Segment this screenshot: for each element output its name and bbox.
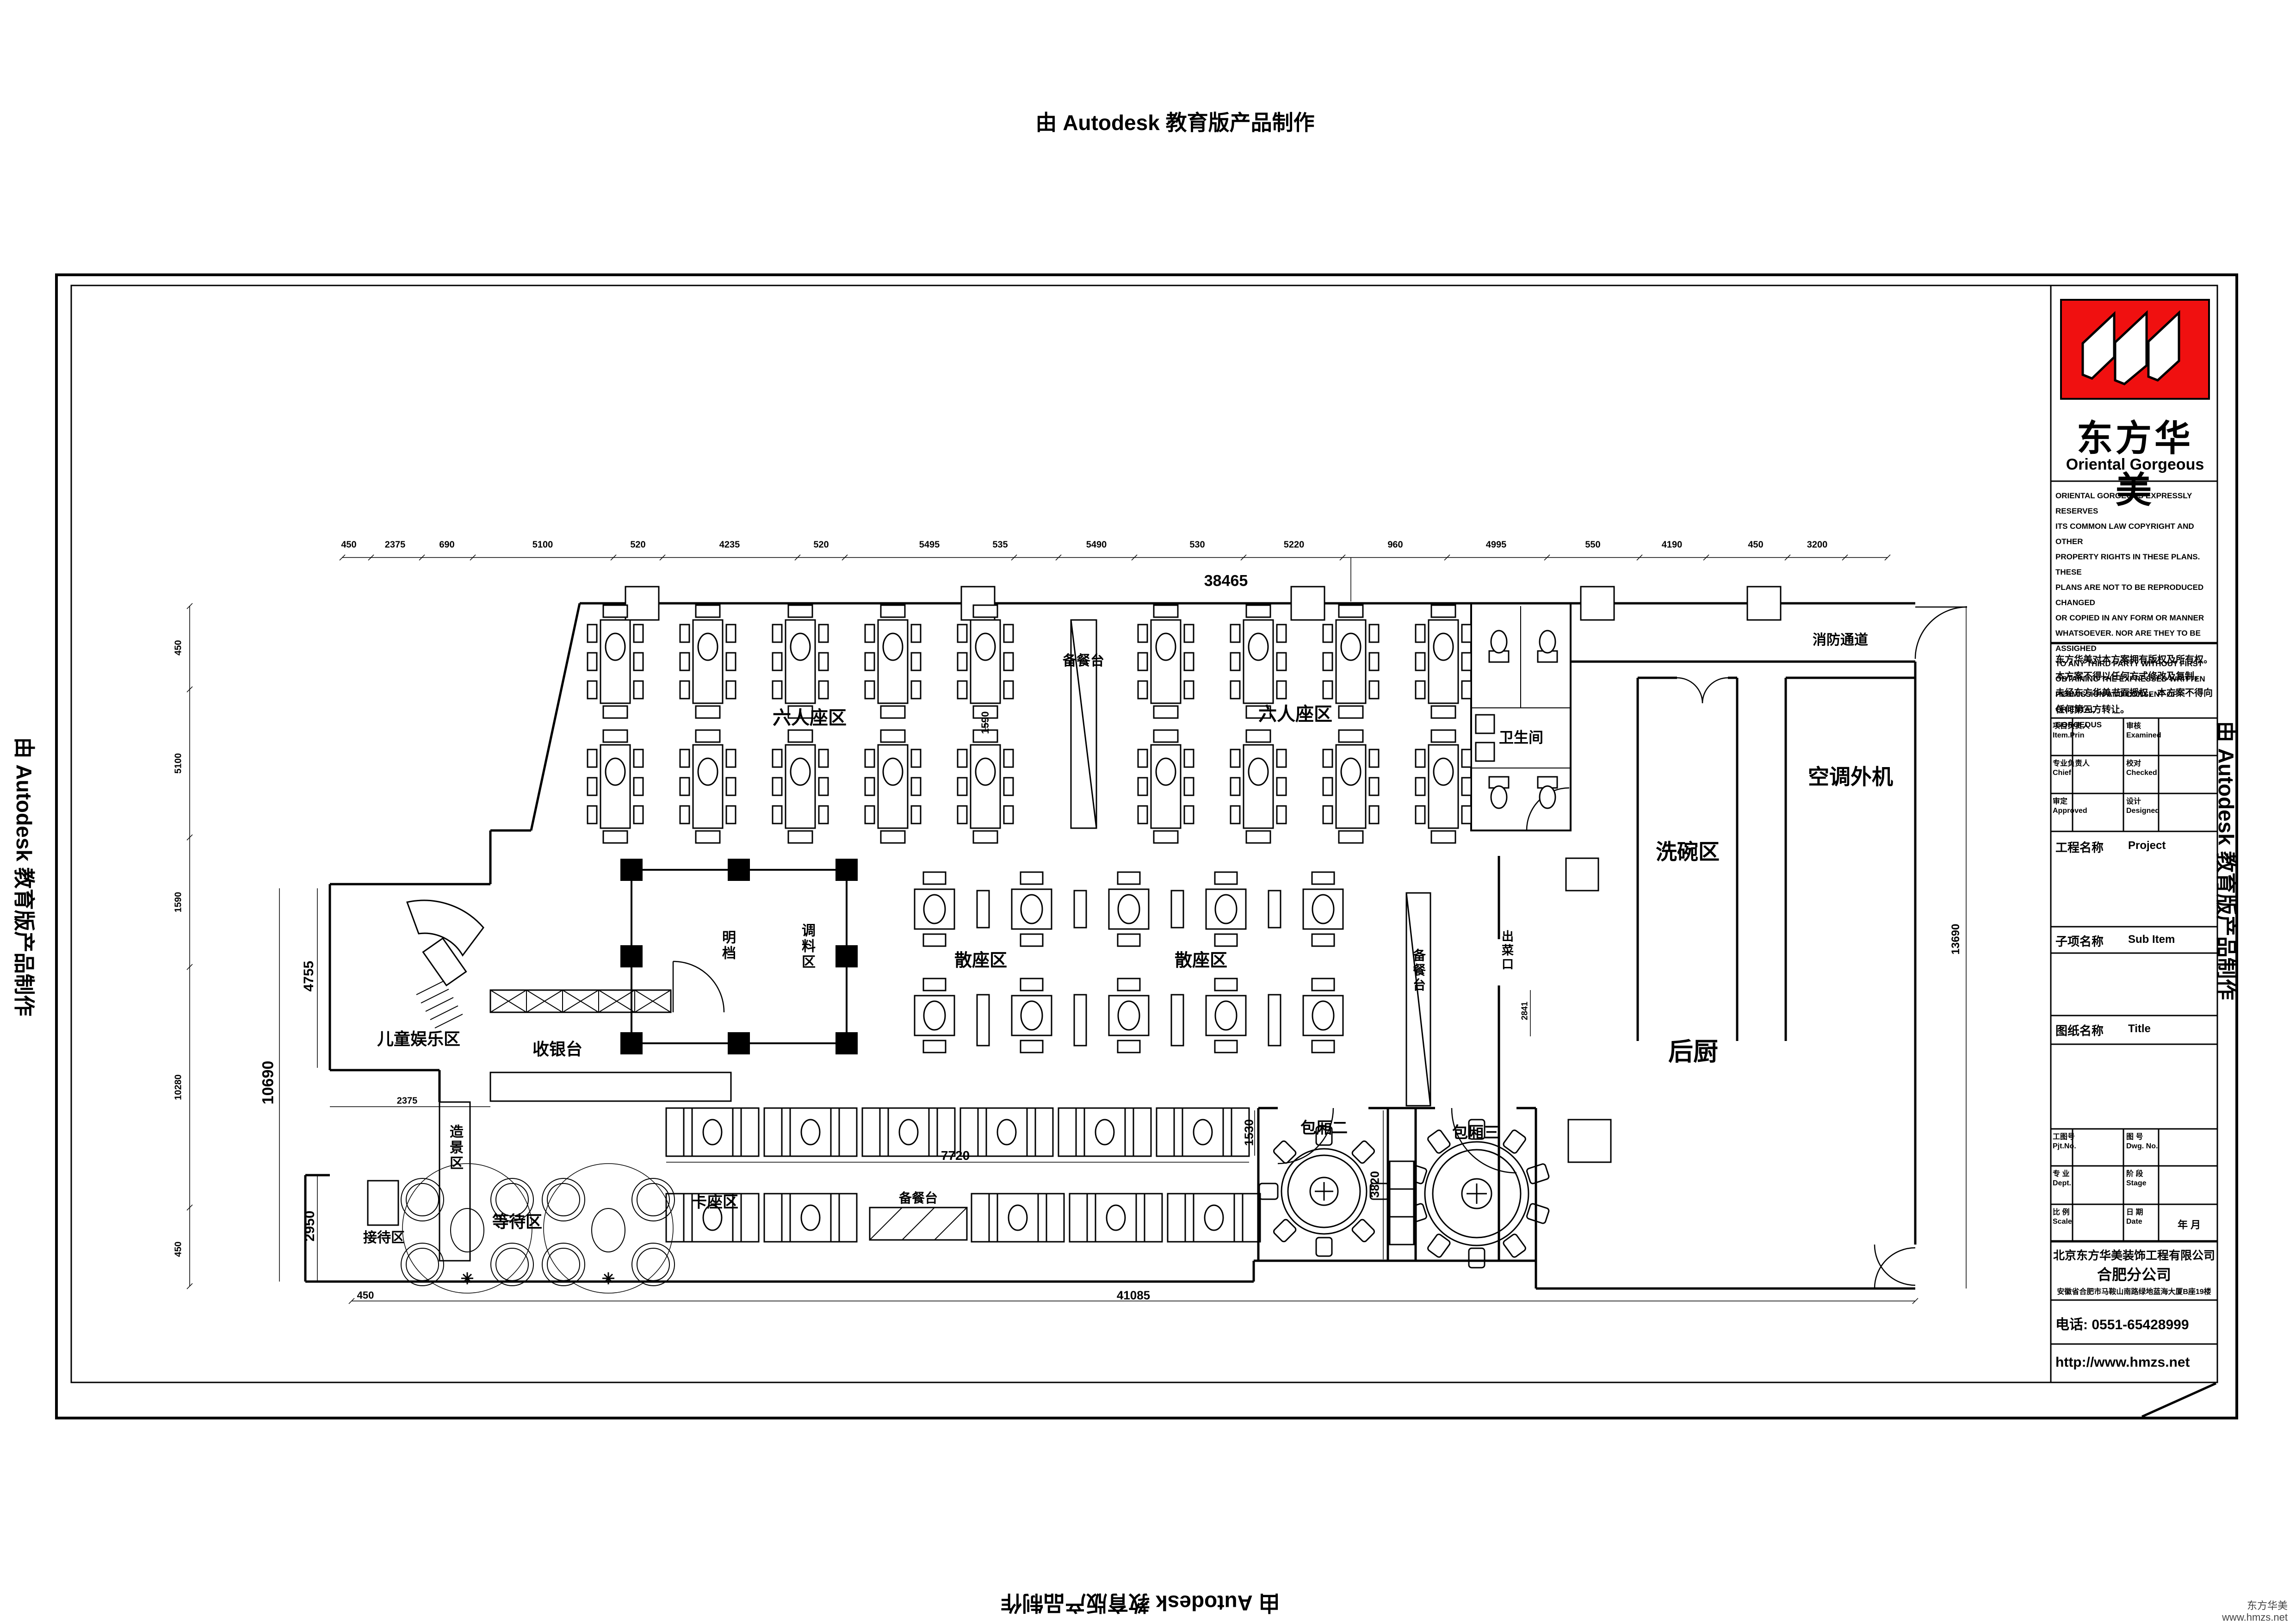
section-subitem-cn: 子项名称 [2055, 932, 2104, 949]
kids-slide [407, 900, 483, 1028]
field-approved-en: Approved [2053, 806, 2087, 816]
field-dwgno-cn: 图 号 [2126, 1133, 2158, 1142]
company-phone: 电话: 0551-65428999 [2055, 1313, 2189, 1333]
field-designed-en: Designed [2126, 806, 2160, 816]
field-stage-en: Stage [2126, 1179, 2147, 1188]
dim-4755: 4755 [301, 961, 317, 992]
area-label-open1: 散座区 [954, 946, 1007, 972]
cashier-counter [490, 1072, 731, 1101]
dim-chain: 5100 [532, 540, 553, 551]
dim-1530: 1530 [1242, 1119, 1256, 1146]
toilet-fixtures [1476, 631, 1557, 808]
area-label-open2: 散座区 [1175, 946, 1227, 972]
area-label-waiting: 等待区 [492, 1208, 542, 1233]
dim-10690: 10690 [260, 1061, 278, 1105]
dim-chain: 5490 [1086, 540, 1107, 551]
field-scale-cn: 比 例 [2053, 1208, 2072, 1217]
reception-desk [368, 1181, 398, 1225]
edu-stamp-right: 由 Autodesk 教育版产品制作 [2212, 721, 2243, 1000]
dim-chain: 450 [1748, 540, 1763, 551]
dim-chain: 530 [1189, 540, 1205, 551]
dim-41085: 41085 [1117, 1288, 1150, 1303]
area-label-cashier: 收银台 [532, 1036, 582, 1060]
field-dwgno-en: Dwg. No. [2126, 1142, 2158, 1151]
dim-2375: 2375 [397, 1096, 418, 1107]
dim-chain: 3200 [1807, 540, 1828, 551]
dim-chain: 520 [813, 540, 829, 551]
dim-chain: 550 [1585, 540, 1600, 551]
dim-chain-left: 1590 [173, 892, 184, 913]
field-scale-en: Scale [2053, 1217, 2072, 1227]
pillars [620, 859, 858, 1054]
dim-chain: 4190 [1662, 540, 1683, 551]
field-pjtno-en: Pjt.No. [2053, 1142, 2076, 1151]
section-title-en: Title [2128, 1022, 2151, 1035]
dim-chain-left: 450 [173, 1241, 184, 1257]
area-label-serving-bottom: 备餐台 [899, 1188, 938, 1207]
field-examined-en: Examined [2126, 731, 2161, 740]
dim-13690: 13690 [1949, 924, 1962, 955]
edu-stamp-top: 由 Autodesk 教育版产品制作 [1035, 106, 1314, 136]
dim-chain-left: 450 [173, 640, 184, 655]
company-name: 北京东方华美装饰工程有限公司 [2051, 1246, 2217, 1263]
dim-chain: 520 [630, 540, 645, 551]
dim-chain: 5495 [919, 540, 940, 551]
edu-stamp-left: 由 Autodesk 教育版产品制作 [10, 737, 41, 1016]
dim-chain: 5220 [1284, 540, 1305, 551]
section-title-cn: 图纸名称 [2055, 1022, 2104, 1039]
dim-chain: 450 [341, 540, 356, 551]
field-date-value: 年 月 [2161, 1217, 2217, 1232]
field-checked-en: Checked [2126, 768, 2157, 778]
serving-counter-bottom [870, 1208, 967, 1240]
sheet-borders [56, 275, 2237, 1418]
room-divider-sofa [1390, 1161, 1414, 1245]
field-dept-en: Dept. [2053, 1179, 2071, 1188]
area-label-six-left: 六人座区 [773, 703, 847, 730]
area-label-mingdang: 明档 [717, 930, 737, 961]
area-label-room3: 包厢三 [1452, 1120, 1499, 1143]
field-item-prin-en: Item.Prin [2053, 731, 2090, 740]
cad-floorplan-sheet: { "stamps": { "top": "由 Autodesk 教育版产品制作… [0, 0, 2296, 1623]
serving-counter-mid [1406, 893, 1430, 1106]
dim-chain: 4235 [719, 540, 740, 551]
edu-stamp-bottom: 由 Autodesk 教育版产品制作 [1001, 1589, 1280, 1620]
area-label-fire: 消防通道 [1813, 628, 1868, 649]
watermark-brand: 东方华美 [2174, 1600, 2288, 1611]
dim-7720: 7720 [941, 1148, 970, 1163]
area-label-ac: 空调外机 [1808, 760, 1893, 791]
watermark-url: www.hmzs.net [2174, 1611, 2288, 1623]
field-designed-cn: 设计 [2126, 797, 2160, 806]
dim-overall: 38465 [1204, 572, 1248, 590]
area-label-toilet: 卫生间 [1499, 726, 1543, 747]
area-label-six-right: 六人座区 [1258, 699, 1332, 726]
section-subitem-en: Sub Item [2128, 933, 2175, 946]
company-address: 安徽省合肥市马鞍山南路绿地蓝海大厦B座19楼 [2051, 1285, 2217, 1296]
field-chief-cn: 专业负责人 [2053, 759, 2090, 768]
field-item-prin-cn: 项目负责人 [2053, 722, 2090, 731]
dim-450-bottom: 450 [357, 1289, 374, 1301]
dim-chain: 535 [992, 540, 1008, 551]
company-branch: 合肥分公司 [2051, 1263, 2217, 1284]
dim-1590: 1590 [979, 712, 991, 734]
field-pjtno-cn: 工图号 [2053, 1133, 2076, 1142]
logo-en: Oriental Gorgeous [2056, 456, 2214, 474]
section-project-cn: 工程名称 [2055, 838, 2104, 855]
field-chief-en: Chief [2053, 768, 2090, 778]
dim-2950: 2950 [302, 1211, 318, 1242]
field-checked-cn: 校对 [2126, 759, 2157, 768]
field-approved-cn: 审定 [2053, 797, 2087, 806]
entrance-truss [490, 990, 671, 1012]
dim-chain-left: 5100 [173, 753, 184, 774]
area-label-scenery: 造景区 [445, 1124, 465, 1171]
oriental-gorgeous-logo [2061, 300, 2209, 399]
dim-chain: 2375 [385, 540, 406, 551]
area-label-room2: 包厢二 [1300, 1115, 1348, 1138]
drawing-canvas [0, 0, 2296, 1623]
area-label-serving-mid: 备餐台 [1409, 948, 1428, 993]
dim-2841: 2841 [1520, 1002, 1530, 1020]
field-date-cn: 日 期 [2126, 1208, 2143, 1217]
area-label-dishwash: 洗碗区 [1656, 835, 1720, 866]
six-seat-tables [588, 605, 1471, 843]
area-label-kids: 儿童娱乐区 [377, 1026, 460, 1050]
dim-chain-left: 10280 [173, 1074, 184, 1100]
area-label-spice: 调料区 [797, 923, 817, 970]
field-date-en: Date [2126, 1217, 2143, 1227]
dim-chain: 960 [1387, 540, 1403, 551]
disclaimer-text: 东方华美对本方案拥有版权及所有权。 本方案不得以任何方式修改及复制。 未经东方华… [2055, 651, 2215, 718]
area-label-reception: 接待区 [363, 1226, 405, 1246]
dim-chain: 4995 [1486, 540, 1507, 551]
section-project-en: Project [2128, 839, 2166, 852]
area-label-kitchen: 后厨 [1668, 1031, 1718, 1068]
field-dept-cn: 专 业 [2053, 1170, 2071, 1179]
area-label-serving-top: 备餐台 [1063, 649, 1104, 669]
dim-3820: 3820 [1368, 1171, 1382, 1198]
field-examined-cn: 审核 [2126, 722, 2161, 731]
area-label-out: 出菜口 [1499, 930, 1516, 972]
field-stage-cn: 阶 段 [2126, 1170, 2147, 1179]
company-website: http://www.hmzs.net [2055, 1355, 2190, 1370]
dim-chain: 690 [439, 540, 454, 551]
area-label-booth: 卡座区 [691, 1189, 738, 1212]
